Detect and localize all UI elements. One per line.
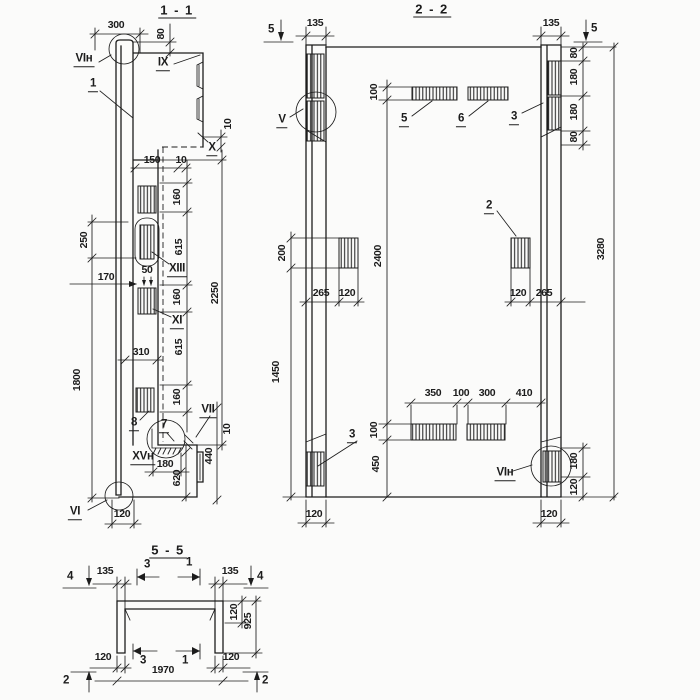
drawing-linework	[0, 0, 700, 700]
cut-marker-5-right: 5	[591, 23, 597, 35]
dim-310: 310	[133, 347, 150, 358]
dim-200: 200	[277, 245, 288, 262]
dim-10-bot: 10	[222, 423, 233, 434]
dim-120-col-right: 120	[541, 509, 558, 520]
dim-160-b: 160	[172, 289, 183, 306]
part-label-3-top: 3	[509, 111, 519, 125]
dim-120-right-55: 120	[229, 604, 240, 621]
dim-10-step: 10	[175, 155, 186, 166]
dim-180: 180	[157, 459, 174, 470]
cut-marker-2-right: 2	[262, 675, 268, 687]
cut-marker-2-left: 2	[63, 675, 69, 687]
section-2-2-title: 2 - 2	[413, 3, 451, 18]
dim-180-a: 180	[569, 69, 580, 86]
dim-1450: 1450	[271, 361, 282, 383]
cut-marker-3-bot: 3	[140, 655, 146, 667]
view-label-xv-n: XVн	[130, 451, 155, 465]
dim-265-left: 265	[313, 288, 330, 299]
engineering-drawing: 1 - 1 300 80 VIн 1 IX X 10 150 10 160 61…	[0, 0, 700, 700]
dim-135-left: 135	[307, 18, 324, 29]
dim-615-b: 615	[174, 339, 185, 356]
dim-440: 440	[204, 448, 215, 465]
cut-marker-1-top: 1	[186, 557, 192, 569]
view-label-vii: VII	[199, 404, 216, 418]
view-label-v: V	[276, 114, 287, 128]
dim-180-bot: 180	[569, 453, 580, 470]
dim-300: 300	[108, 20, 125, 31]
cut-marker-5-left: 5	[268, 24, 274, 36]
dim-350: 350	[425, 388, 442, 399]
dim-100-bot: 100	[369, 422, 380, 439]
part-label-8: 8	[129, 417, 139, 431]
dim-120: 120	[114, 509, 131, 520]
dim-160-a: 160	[172, 189, 183, 206]
dim-3280: 3280	[596, 238, 607, 260]
dim-150: 150	[144, 155, 161, 166]
part-label-7: 7	[159, 419, 169, 433]
view-label-ix: IX	[156, 57, 170, 71]
dim-80: 80	[156, 28, 167, 39]
view-label-x: X	[206, 142, 217, 156]
dim-120-right: 120	[510, 288, 527, 299]
dim-120-bot: 120	[569, 479, 580, 496]
view-label-vi: VI	[68, 506, 82, 520]
view-label-xiii: XIII	[167, 263, 187, 277]
dim-135-right: 135	[543, 18, 560, 29]
dim-100-top: 100	[369, 84, 380, 101]
dim-410: 410	[516, 388, 533, 399]
cut-marker-4-right: 4	[257, 571, 263, 583]
dim-615-a: 615	[174, 239, 185, 256]
section-5-5-title: 5 - 5	[149, 544, 187, 559]
dim-50: 50	[141, 265, 152, 276]
dim-925: 925	[243, 613, 254, 630]
cut-marker-4-left: 4	[67, 571, 73, 583]
cut-marker-1-bot: 1	[182, 655, 188, 667]
part-label-5: 5	[399, 113, 409, 127]
dim-120-bot-left-55: 120	[95, 652, 112, 663]
cut-marker-3-top: 3	[144, 559, 150, 571]
view-label-xi: XI	[170, 315, 184, 329]
dim-450: 450	[371, 456, 382, 473]
dim-80-a: 80	[569, 47, 580, 58]
dim-1970: 1970	[152, 665, 174, 676]
dim-120-bot-right-55: 120	[223, 652, 240, 663]
dim-180-b: 180	[569, 104, 580, 121]
dim-1800: 1800	[72, 369, 83, 391]
dim-170: 170	[98, 272, 115, 283]
dim-2250: 2250	[210, 282, 221, 304]
part-label-6: 6	[456, 113, 466, 127]
dim-620: 620	[172, 470, 183, 487]
detail-label-vi-n: VIн	[74, 53, 95, 67]
part-label-2: 2	[484, 200, 494, 214]
dim-250: 250	[79, 232, 90, 249]
part-label-3-bot: 3	[347, 429, 357, 443]
view-label-vi-n: VIн	[495, 467, 516, 481]
dim-300-bot: 300	[479, 388, 496, 399]
dim-100-mid: 100	[453, 388, 470, 399]
dim-10-top: 10	[223, 118, 234, 129]
section-1-1-title: 1 - 1	[158, 4, 196, 19]
dim-135-right-55: 135	[222, 566, 239, 577]
dim-265-right: 265	[536, 288, 553, 299]
part-label-1: 1	[88, 78, 98, 92]
dim-120-left: 120	[339, 288, 356, 299]
dim-2400: 2400	[373, 245, 384, 267]
dim-80-b: 80	[569, 131, 580, 142]
dim-160-c: 160	[172, 389, 183, 406]
dim-120-col-left: 120	[306, 509, 323, 520]
dim-135-left-55: 135	[97, 566, 114, 577]
section-2-2-lines	[264, 20, 618, 527]
